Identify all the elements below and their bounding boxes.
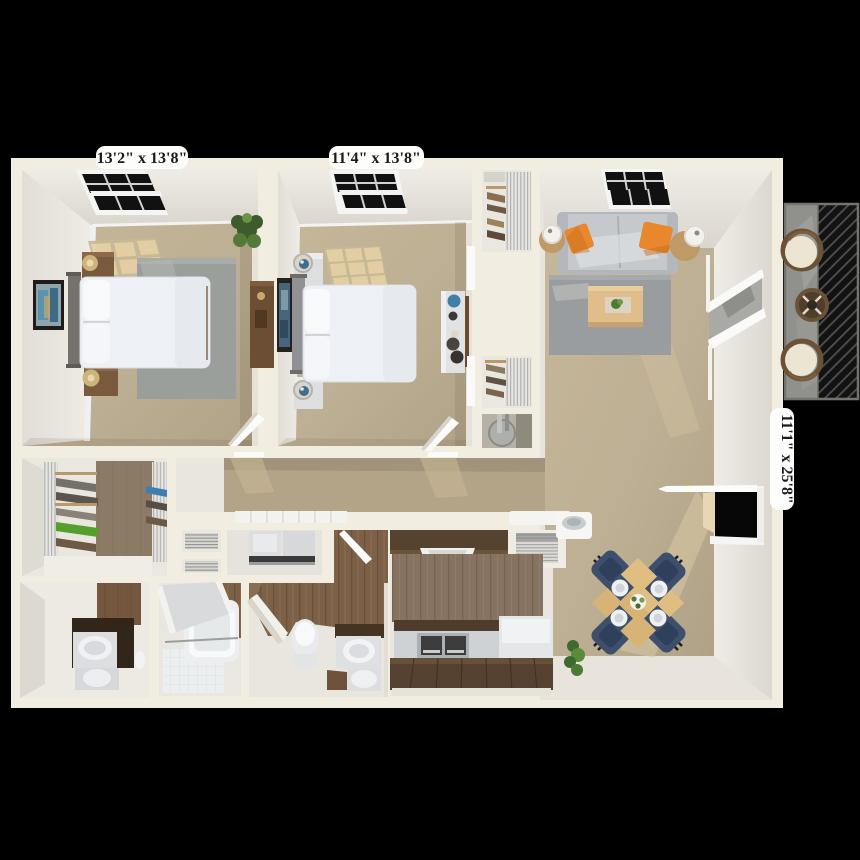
svg-text:11'1" x 25'8": 11'1" x 25'8" — [778, 414, 795, 504]
svg-text:11'4" x 13'8": 11'4" x 13'8" — [331, 150, 421, 167]
svg-text:13'2" x 13'8": 13'2" x 13'8" — [97, 150, 188, 167]
